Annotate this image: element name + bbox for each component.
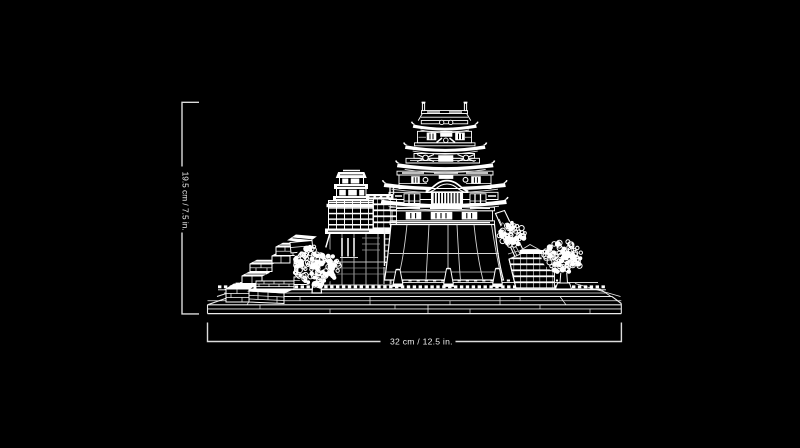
svg-text:32 cm / 12.5 in.: 32 cm / 12.5 in. xyxy=(390,336,453,346)
svg-text:19.5 cm / 7.5 in.: 19.5 cm / 7.5 in. xyxy=(181,172,191,231)
